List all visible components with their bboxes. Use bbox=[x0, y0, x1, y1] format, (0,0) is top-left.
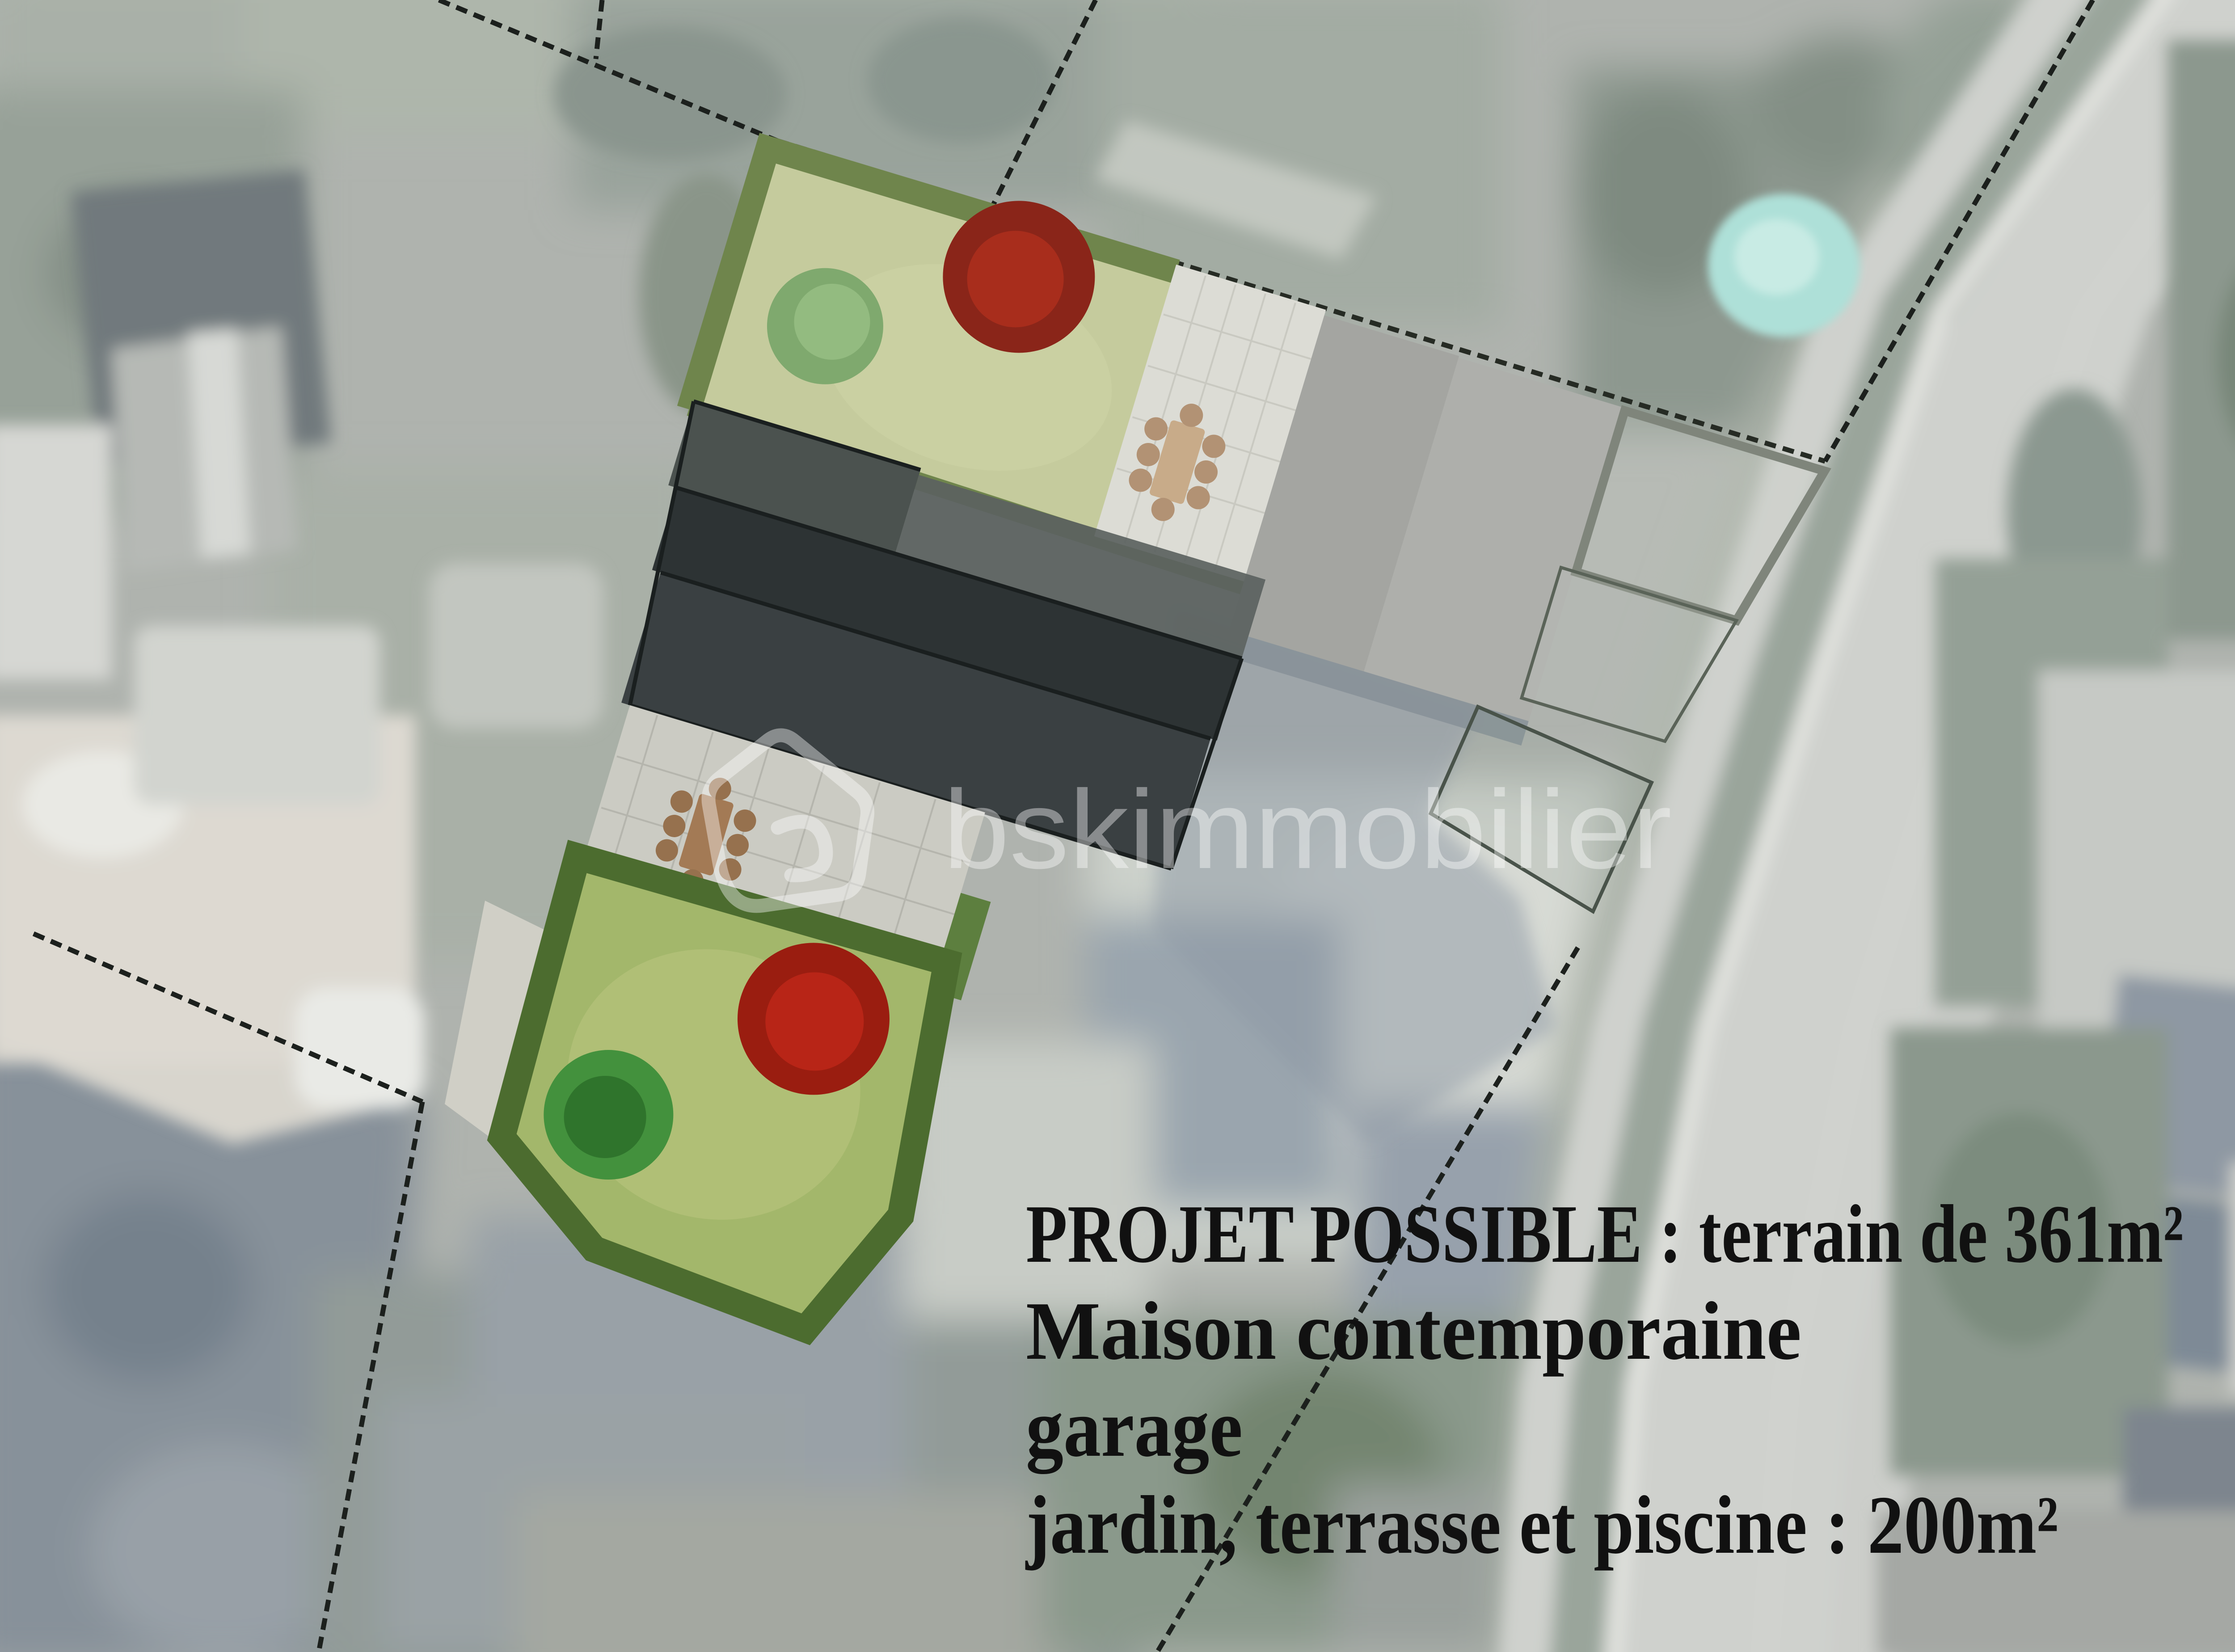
svg-text:garage: garage bbox=[1026, 1382, 1243, 1474]
svg-text:Maison contemporaine: Maison contemporaine bbox=[1026, 1285, 1801, 1377]
svg-text:bskimmobilier: bskimmobilier bbox=[943, 767, 1672, 892]
svg-text:jardin, terrasse et piscine :: jardin, terrasse et piscine : 200m² bbox=[1025, 1479, 2058, 1571]
svg-text:PROJET POSSIBLE : terrain de 3: PROJET POSSIBLE : terrain de 361m² bbox=[1026, 1188, 2184, 1280]
